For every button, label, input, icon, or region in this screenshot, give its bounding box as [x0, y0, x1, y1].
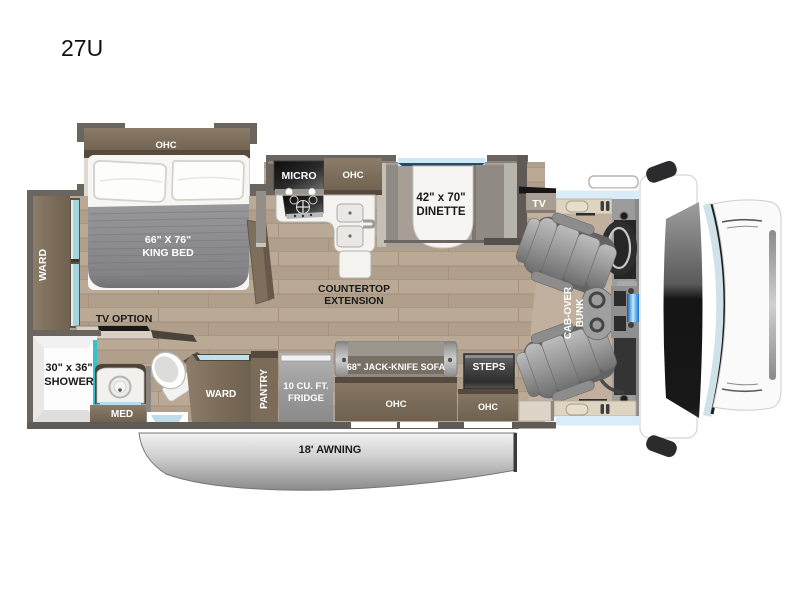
svg-text:18' AWNING: 18' AWNING	[299, 444, 362, 456]
svg-text:WARD: WARD	[206, 389, 237, 400]
svg-text:FRIDGE: FRIDGE	[288, 393, 324, 404]
svg-text:27U: 27U	[61, 35, 103, 61]
svg-text:30" x 36": 30" x 36"	[45, 362, 92, 374]
svg-text:CAB-OVER: CAB-OVER	[563, 287, 574, 339]
svg-text:STEPS: STEPS	[473, 362, 506, 373]
svg-text:DINETTE: DINETTE	[416, 206, 466, 218]
svg-text:10 CU. FT.: 10 CU. FT.	[283, 381, 328, 392]
svg-text:OHC: OHC	[342, 170, 363, 181]
svg-text:TV: TV	[532, 198, 545, 210]
svg-text:SHOWER: SHOWER	[44, 376, 94, 388]
svg-text:WARD: WARD	[37, 249, 49, 281]
svg-text:MICRO: MICRO	[282, 170, 317, 182]
svg-text:66" X 76": 66" X 76"	[145, 234, 191, 246]
svg-text:OHC: OHC	[478, 402, 499, 412]
svg-text:MED: MED	[111, 409, 133, 420]
svg-text:OHC: OHC	[385, 399, 406, 410]
svg-text:OHC: OHC	[155, 140, 176, 151]
svg-text:68" JACK-KNIFE SOFA: 68" JACK-KNIFE SOFA	[347, 362, 446, 372]
svg-text:TV OPTION: TV OPTION	[96, 313, 153, 325]
svg-text:PANTRY: PANTRY	[259, 369, 270, 409]
svg-text:42" x 70": 42" x 70"	[416, 192, 465, 204]
svg-text:COUNTERTOP: COUNTERTOP	[318, 284, 390, 295]
svg-text:KING BED: KING BED	[142, 247, 194, 259]
svg-text:BUNK: BUNK	[575, 299, 586, 327]
svg-text:EXTENSION: EXTENSION	[324, 296, 384, 307]
